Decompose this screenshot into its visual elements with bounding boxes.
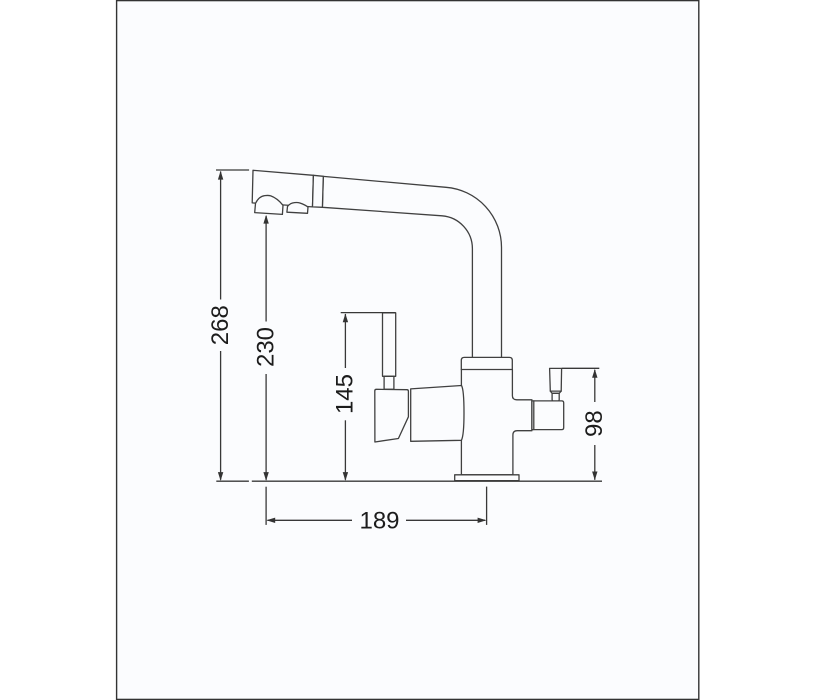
svg-text:268: 268: [207, 305, 234, 345]
svg-text:230: 230: [253, 327, 280, 367]
svg-text:145: 145: [332, 374, 359, 414]
svg-text:189: 189: [359, 507, 399, 534]
svg-text:98: 98: [581, 410, 608, 437]
